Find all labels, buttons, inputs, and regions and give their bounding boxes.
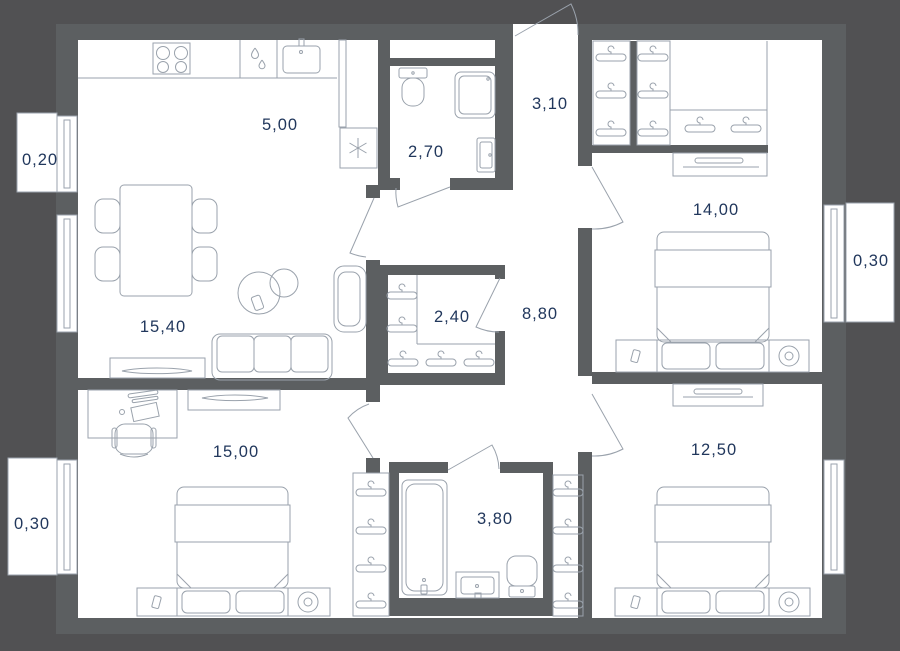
window: [824, 460, 844, 574]
room-label-bedroom-bottom-right: 12,50: [691, 441, 737, 459]
dining-table: [120, 185, 192, 296]
room-label-bedroom-top-right: 14,00: [693, 201, 739, 219]
window: [57, 460, 77, 574]
room-label-bedroom-bottom-left: 15,00: [213, 443, 259, 461]
room-label-living-room: 15,40: [140, 318, 186, 336]
room-label-balcony-top-left: 0,20: [22, 151, 58, 169]
room-label-hallway: 8,80: [522, 305, 558, 323]
room-label-closet: 2,40: [434, 308, 470, 326]
floor-plan-drawing: 5,00 2,70 3,10 14,00 0,20 0,30 15,40 2,4…: [0, 0, 900, 651]
room-label-entrance-hall: 3,10: [532, 95, 568, 113]
window: [57, 116, 77, 192]
window: [824, 205, 844, 322]
room-label-balcony-bottom-left: 0,30: [14, 515, 50, 533]
room-label-bathroom-small: 2,70: [408, 143, 444, 161]
room-label-balcony-right: 0,30: [853, 252, 889, 270]
floor-plan: 5,00 2,70 3,10 14,00 0,20 0,30 15,40 2,4…: [0, 0, 900, 651]
room-label-bathroom-large: 3,80: [477, 510, 513, 528]
window: [57, 215, 77, 332]
room-label-kitchen: 5,00: [262, 116, 298, 134]
